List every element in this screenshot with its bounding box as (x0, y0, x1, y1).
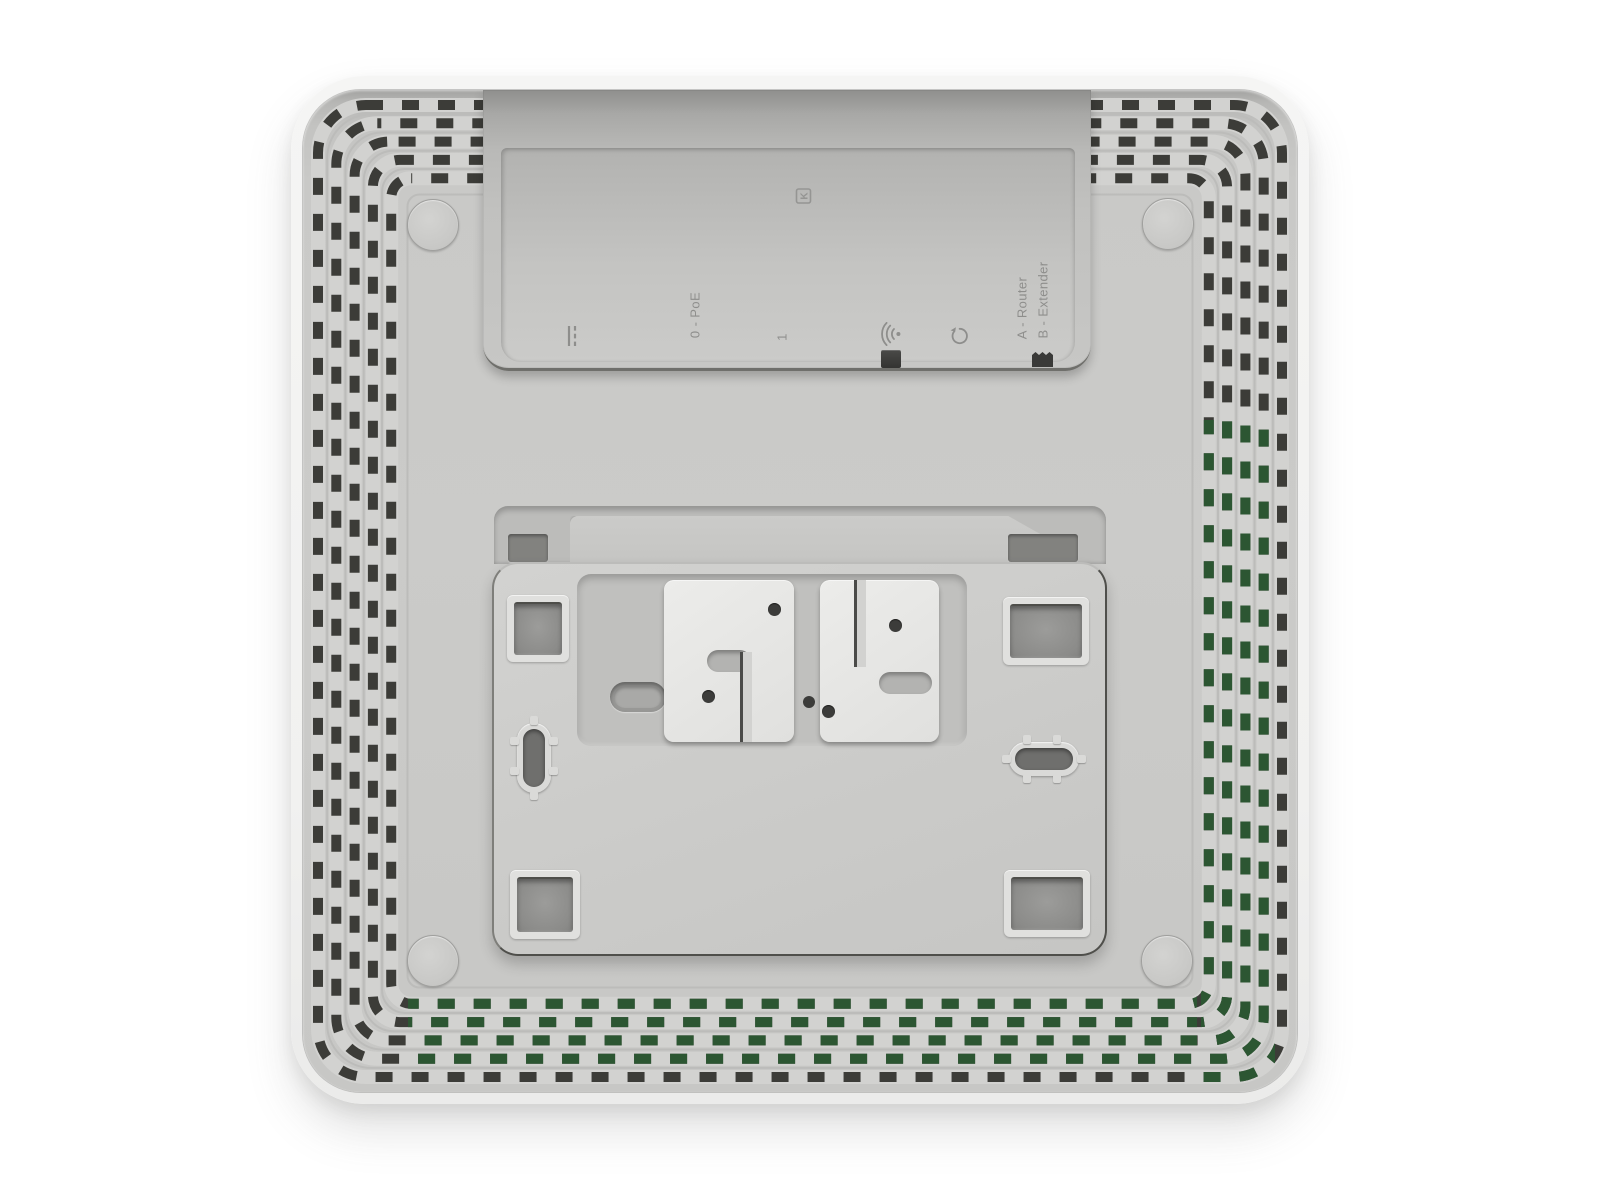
bracket-oval-slot-inner (614, 686, 662, 708)
mounting-cutout-hole (517, 877, 573, 932)
keyhole-tab (530, 791, 538, 800)
keyhole-tab (1023, 735, 1031, 744)
bracket-clip-right[interactable] (820, 580, 939, 742)
mode-a-label: A - Router (1015, 277, 1030, 340)
mounting-cutout-hole (1010, 604, 1082, 658)
screw-boss-top-left (407, 199, 459, 251)
svg-text:K: K (800, 192, 811, 200)
port-recess-floor (501, 148, 1075, 362)
screw-boss-top-right (1142, 198, 1194, 250)
screw-boss-bottom-right (1141, 935, 1193, 987)
keyhole-tab (549, 737, 558, 745)
bracket-tray (577, 574, 967, 746)
keyhole-tab (510, 767, 519, 775)
keyhole-tab (1053, 774, 1061, 783)
bracket-tab-left (508, 534, 548, 562)
clip-groove (740, 652, 752, 742)
keyhole-tab (1002, 755, 1011, 763)
screw-boss-bottom-left (407, 935, 459, 987)
product-photo-scene: K 0 - PoE 1 (0, 0, 1600, 1185)
keyhole-tab (1077, 755, 1086, 763)
mounting-cutout-bottom-left (510, 870, 580, 939)
mode-switch[interactable] (1032, 348, 1053, 367)
bracket-oval-slot (610, 682, 666, 712)
mounting-plate (492, 562, 1107, 956)
wifi-wps-icon (880, 322, 902, 346)
keyhole-tab (1023, 774, 1031, 783)
keyhole-slot (523, 729, 545, 787)
mounting-cutout-top-left (507, 595, 569, 662)
keyhole-tab (1053, 735, 1061, 744)
clip-screw-hole (702, 690, 715, 703)
clip-screw-hole (889, 619, 902, 632)
mounting-cutout-hole (514, 602, 562, 655)
clip-screw-hole (822, 705, 835, 718)
device-body: K 0 - PoE 1 (291, 76, 1309, 1104)
mounting-cutout-bottom-right (1004, 870, 1090, 937)
bracket-recess (494, 506, 1106, 564)
reset-icon (950, 326, 970, 346)
mounting-cutout-top-right (1003, 597, 1089, 665)
port-recess: K 0 - PoE 1 (483, 90, 1091, 371)
tray-screw-hole (803, 696, 815, 708)
port1-label: 1 (775, 333, 790, 341)
keyhole-right (1009, 742, 1079, 776)
wps-button[interactable] (881, 350, 901, 368)
keyhole-tab (530, 716, 538, 725)
device-back-panel: K 0 - PoE 1 (303, 90, 1297, 1092)
clip-slot (879, 672, 932, 694)
dc-power-symbol (565, 324, 579, 348)
keyhole-left (517, 723, 551, 793)
keyhole-tab (549, 767, 558, 775)
mode-b-label: B - Extender (1036, 261, 1051, 338)
bracket-tab-right (1008, 534, 1078, 562)
kensington-lock-icon: K (786, 186, 813, 206)
mounting-cutout-hole (1011, 877, 1083, 930)
port0-label: 0 - PoE (688, 292, 703, 338)
bracket-clip-left[interactable] (664, 580, 794, 742)
keyhole-slot (1015, 748, 1073, 770)
clip-groove (854, 580, 866, 667)
clip-screw-hole (768, 603, 781, 616)
keyhole-tab (510, 737, 519, 745)
bracket-recess-plate (570, 516, 1068, 564)
